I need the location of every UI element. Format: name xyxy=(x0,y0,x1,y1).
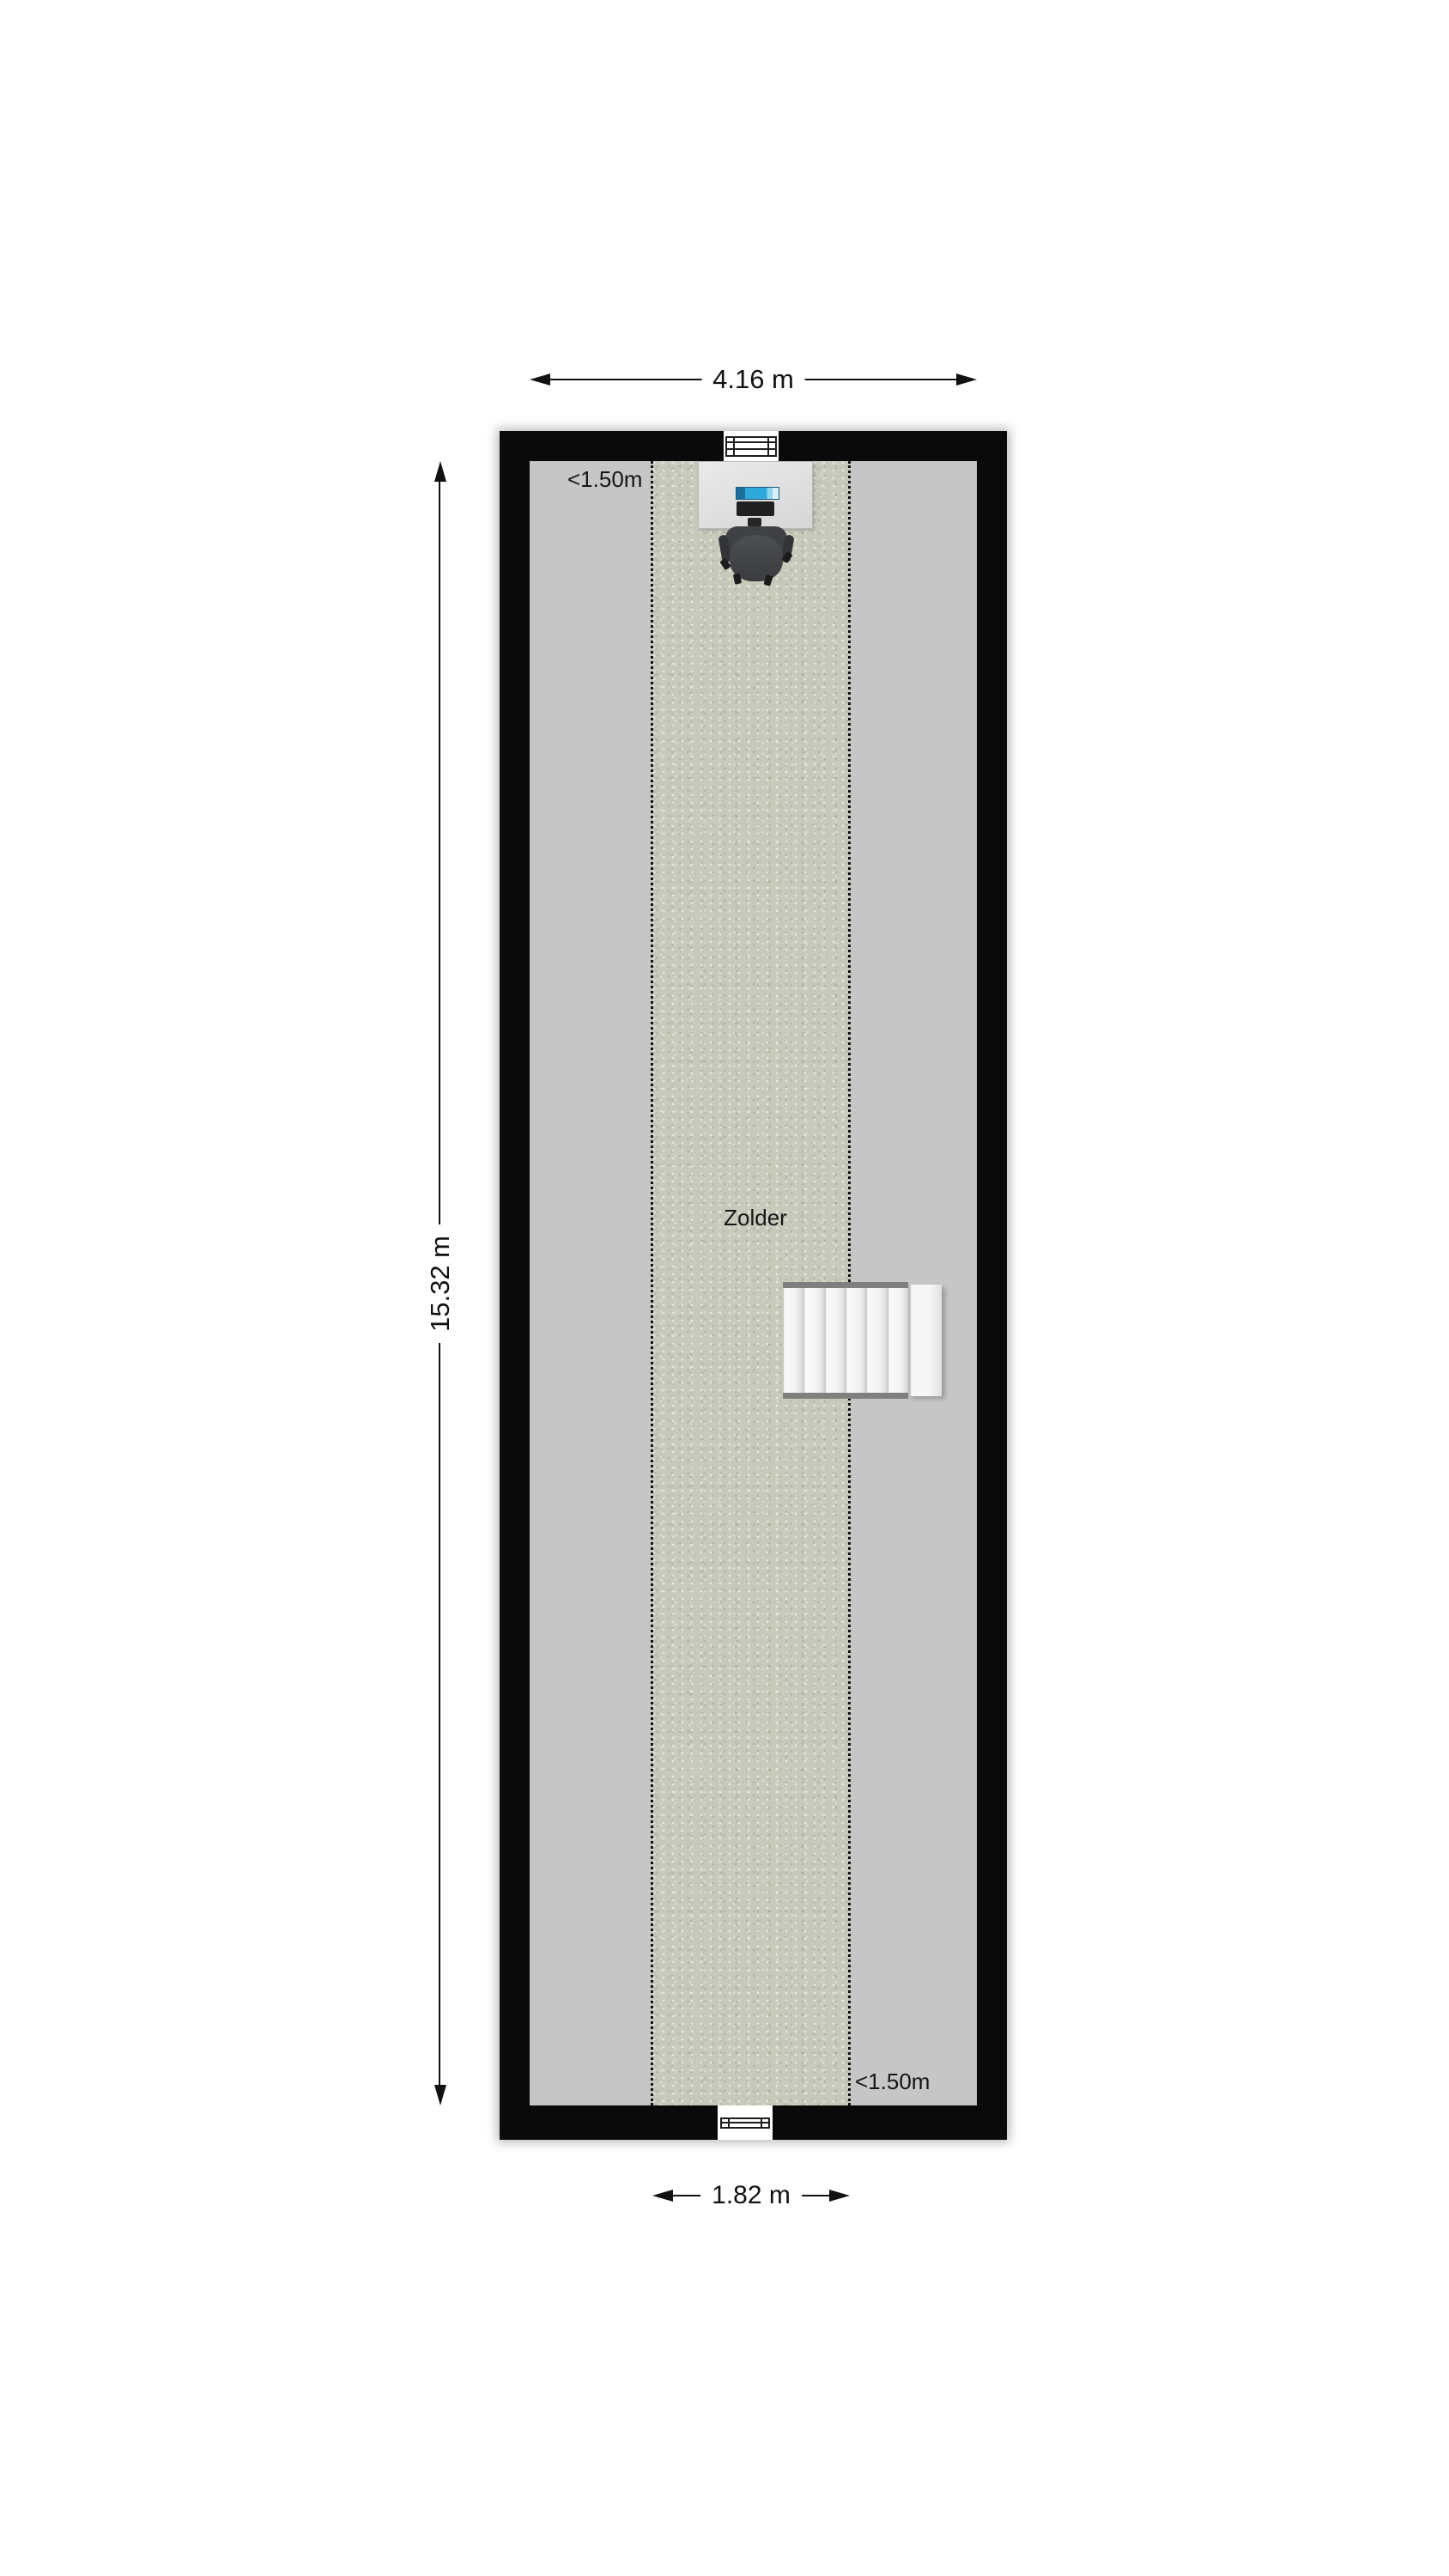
dimension-top: 4.16 m xyxy=(530,368,977,392)
window-frame-cap xyxy=(761,2119,762,2127)
stair-tread xyxy=(846,1288,866,1393)
dimension-bottom: 1.82 m xyxy=(652,2184,850,2208)
stair-top-landing xyxy=(908,1285,942,1396)
stair-tread xyxy=(803,1288,824,1393)
arrow-right-icon xyxy=(956,374,977,386)
stair-stringer-bottom xyxy=(783,1393,908,1399)
window-bottom-icon xyxy=(718,2105,773,2140)
staircase-icon xyxy=(783,1282,942,1399)
stair-tread xyxy=(866,1288,887,1393)
stair-tread xyxy=(888,1288,908,1393)
window-frame xyxy=(725,436,777,457)
stair-stringer-top xyxy=(783,1282,908,1288)
stair-tread xyxy=(825,1288,846,1393)
height-marker-top-left: <1.50m xyxy=(567,466,642,492)
desk-icon xyxy=(698,461,813,529)
height-marker-bottom-right: <1.50m xyxy=(855,2069,930,2094)
window-frame-cap xyxy=(733,438,735,455)
room-label: Zolder xyxy=(687,1203,824,1232)
height-contour-line-left xyxy=(651,461,653,2105)
dimension-left-label: 15.32 m xyxy=(425,1224,456,1342)
arrow-down-icon xyxy=(434,2085,446,2105)
computer-monitor-icon xyxy=(736,487,779,500)
arrow-right-icon xyxy=(829,2190,850,2202)
floorplan-page: { "room": { "label": "Zolder" }, "dimens… xyxy=(0,0,1449,2576)
stair-tread xyxy=(783,1288,803,1393)
mouse-icon xyxy=(748,518,761,526)
window-top-icon xyxy=(724,431,779,461)
room-zolder-floor: <1.50m <1.50m Zolder xyxy=(530,461,977,2105)
dimension-bottom-label: 1.82 m xyxy=(700,2181,802,2210)
window-frame xyxy=(720,2117,770,2129)
office-chair-icon xyxy=(720,526,792,583)
window-frame-cap xyxy=(767,438,769,455)
plan-walls: <1.50m <1.50m Zolder xyxy=(500,431,1007,2140)
stair-treads xyxy=(783,1288,908,1393)
dimension-top-label: 4.16 m xyxy=(701,364,805,395)
arrow-up-icon xyxy=(434,461,446,482)
dimension-left: 15.32 m xyxy=(428,461,452,2105)
keyboard-icon xyxy=(737,501,774,516)
